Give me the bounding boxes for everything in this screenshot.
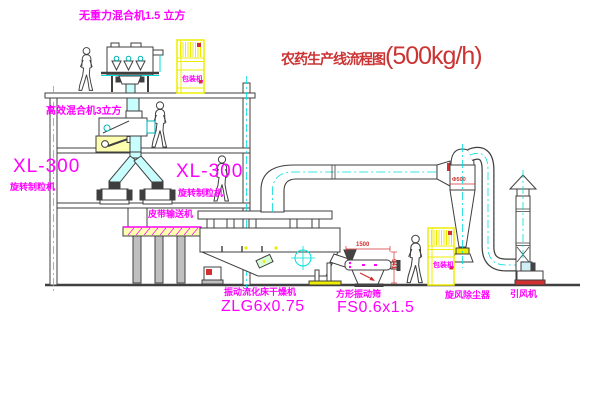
packing-machine-top — [177, 40, 204, 93]
gravity-free-mixer — [101, 43, 163, 93]
dimension-cyclone: Φ500 — [452, 178, 466, 184]
cyclone-outlet-duct — [470, 153, 519, 265]
label-packing-machine-bottom: 包装机 — [433, 262, 454, 269]
label-screen-model: FS0.6x1.5 — [337, 300, 414, 316]
label-granulator-left-name: 旋转制粒机 — [10, 183, 55, 192]
packing-machine-bottom — [428, 228, 454, 285]
discharge-chute — [128, 208, 147, 228]
title-text: 农药生产线流程图 — [281, 51, 385, 67]
label-packing-machine-top: 包装机 — [182, 76, 203, 83]
title-capacity: (500kg/h) — [385, 42, 482, 70]
label-dryer-model: ZLG6x0.75 — [221, 299, 305, 315]
person-ground — [407, 235, 422, 282]
label-granulator-left-model: XL-300 — [13, 157, 80, 176]
label-screen-name: 方形振动筛 — [336, 290, 381, 299]
granulator-right — [140, 182, 175, 204]
exhaust-duct-elbow — [261, 165, 450, 212]
label-gravity-free-mixer: 无重力混合机1.5 立方 — [79, 11, 185, 22]
high-efficiency-mixer — [96, 111, 155, 153]
label-dryer-name: 振动流化床干燥机 — [224, 288, 296, 297]
flow-diagram-canvas: 无重力混合机1.5 立方 农药生产线流程图(500kg/h) 高效混合机3立方 … — [0, 0, 600, 403]
label-high-efficiency-mixer: 高效混合机3立方 — [46, 107, 122, 117]
label-fan: 引风机 — [510, 290, 537, 299]
y-duct — [109, 152, 163, 186]
granulator-left — [97, 182, 132, 204]
label-granulator-right-name: 旋转制粒机 — [178, 189, 223, 198]
fluid-bed-dryer — [198, 211, 352, 285]
label-cyclone: 旋风除尘器 — [445, 291, 490, 300]
label-belt-conveyor: 皮带输送机 — [148, 210, 193, 219]
person-roof — [79, 48, 93, 91]
label-granulator-right-model: XL-300 — [176, 162, 243, 181]
page-title: 农药生产线流程图(500kg/h) — [281, 44, 482, 69]
dimension-screen-height: 941 — [390, 259, 396, 269]
dimension-screen-length: 1500 — [356, 242, 369, 248]
